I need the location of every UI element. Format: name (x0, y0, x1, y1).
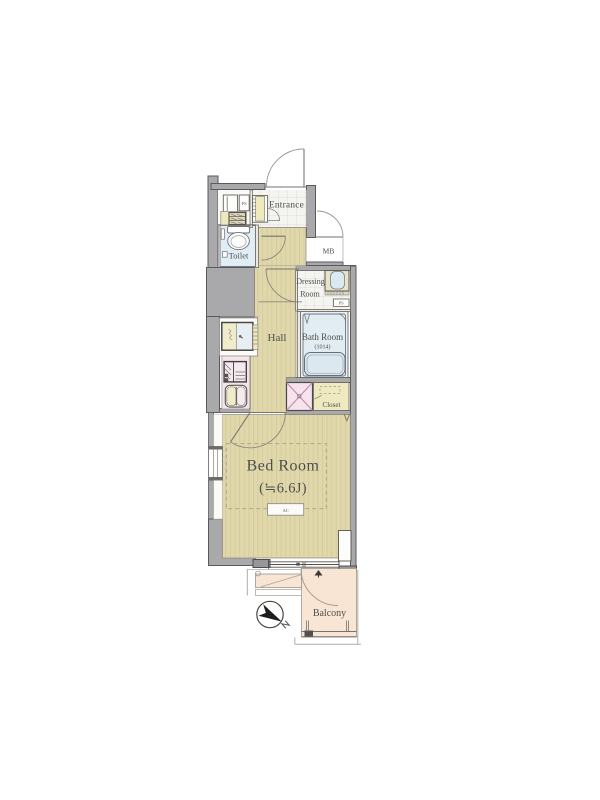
svg-text:PS: PS (242, 201, 247, 206)
svg-text:(≒6.6J): (≒6.6J) (259, 481, 307, 497)
svg-text:(1014): (1014) (315, 344, 331, 351)
svg-text:Bed Room: Bed Room (247, 458, 320, 475)
svg-text:Closet: Closet (323, 401, 341, 409)
svg-text:Entrance: Entrance (269, 200, 304, 210)
svg-text:Room: Room (300, 290, 320, 299)
svg-text:Dressing: Dressing (296, 277, 324, 286)
svg-text:Hall: Hall (268, 332, 287, 344)
svg-text:AC: AC (282, 508, 288, 513)
svg-text:Toilet: Toilet (229, 251, 249, 261)
svg-text:Balcony: Balcony (313, 608, 346, 619)
svg-text:Bath Room: Bath Room (302, 332, 343, 342)
svg-text:PS: PS (339, 301, 344, 306)
svg-text:MB: MB (323, 247, 335, 256)
